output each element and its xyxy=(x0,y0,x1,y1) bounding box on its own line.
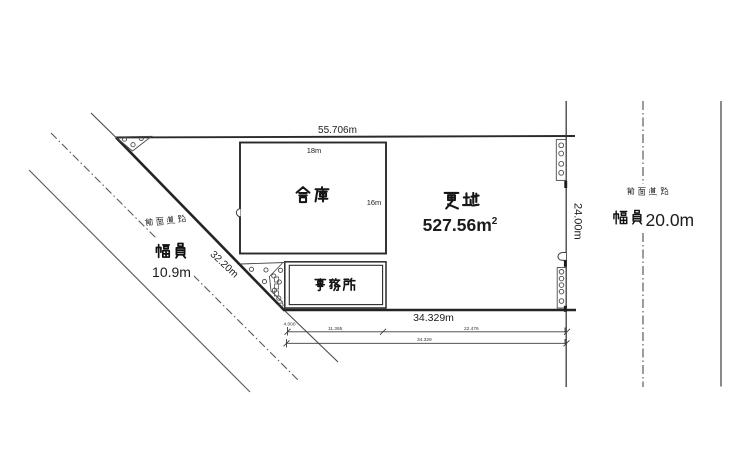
svg-text:24.00m: 24.00m xyxy=(572,203,584,240)
svg-text:527.56m2: 527.56m2 xyxy=(423,215,498,235)
svg-text:4.000: 4.000 xyxy=(284,322,296,328)
svg-text:20.0m: 20.0m xyxy=(646,210,695,230)
svg-text:22.476: 22.476 xyxy=(464,326,479,332)
svg-text:55.706m: 55.706m xyxy=(318,125,357,136)
svg-text:34.329m: 34.329m xyxy=(413,312,454,324)
svg-text:34.329: 34.329 xyxy=(417,337,432,343)
svg-text:18m: 18m xyxy=(307,146,322,155)
svg-text:10.9m: 10.9m xyxy=(152,264,191,280)
svg-text:11.365: 11.365 xyxy=(328,326,343,332)
svg-text:16m: 16m xyxy=(367,198,382,207)
